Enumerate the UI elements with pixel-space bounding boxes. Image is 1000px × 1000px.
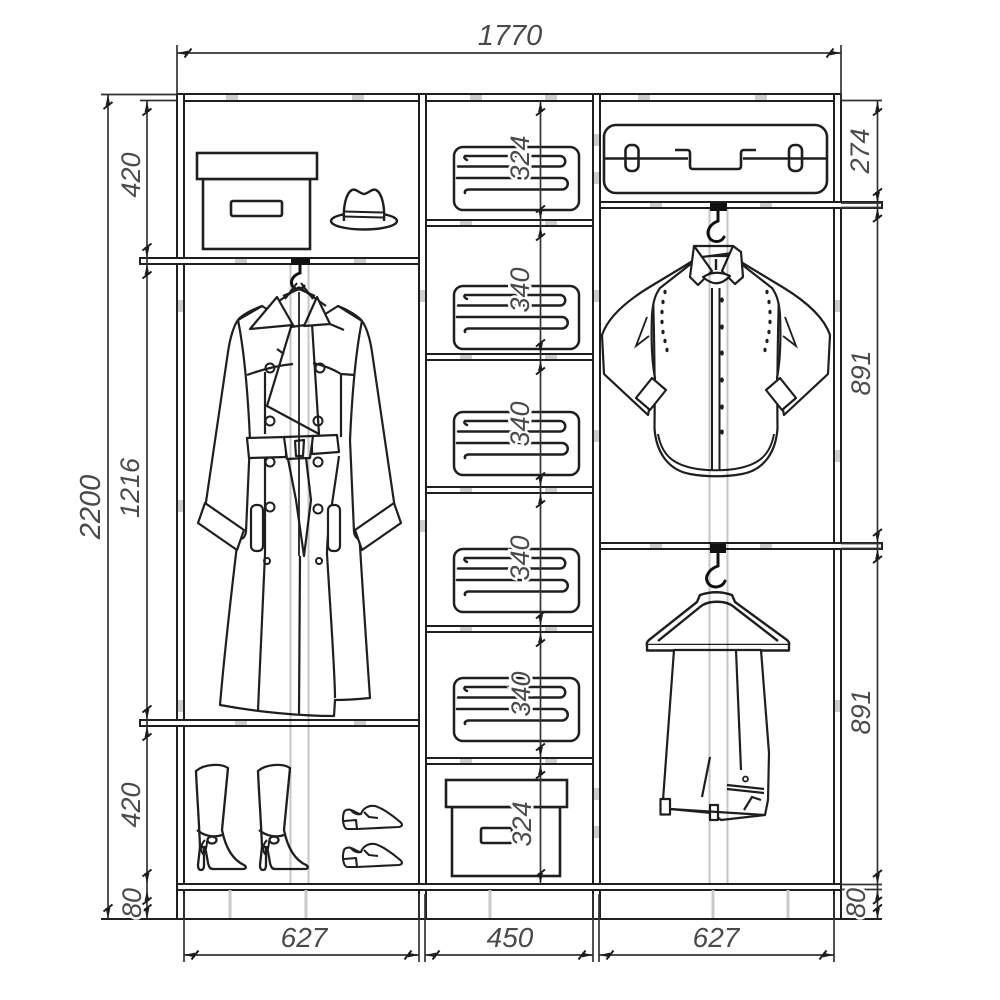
svg-text:340: 340 (506, 671, 536, 716)
svg-text:274: 274 (845, 128, 875, 174)
svg-text:1216: 1216 (115, 457, 145, 518)
svg-text:80: 80 (841, 888, 871, 918)
svg-text:891: 891 (846, 689, 876, 734)
svg-text:420: 420 (116, 152, 146, 197)
svg-text:80: 80 (117, 888, 147, 918)
svg-text:340: 340 (505, 535, 535, 580)
svg-text:340: 340 (505, 267, 535, 312)
svg-text:2200: 2200 (75, 475, 107, 541)
svg-text:1770: 1770 (478, 20, 543, 52)
svg-text:450: 450 (487, 922, 534, 953)
svg-text:627: 627 (693, 922, 741, 953)
svg-text:627: 627 (281, 922, 329, 953)
svg-text:324: 324 (505, 135, 535, 180)
svg-text:324: 324 (507, 801, 537, 846)
svg-text:340: 340 (505, 401, 535, 446)
svg-text:891: 891 (846, 350, 876, 395)
svg-text:420: 420 (116, 782, 146, 827)
